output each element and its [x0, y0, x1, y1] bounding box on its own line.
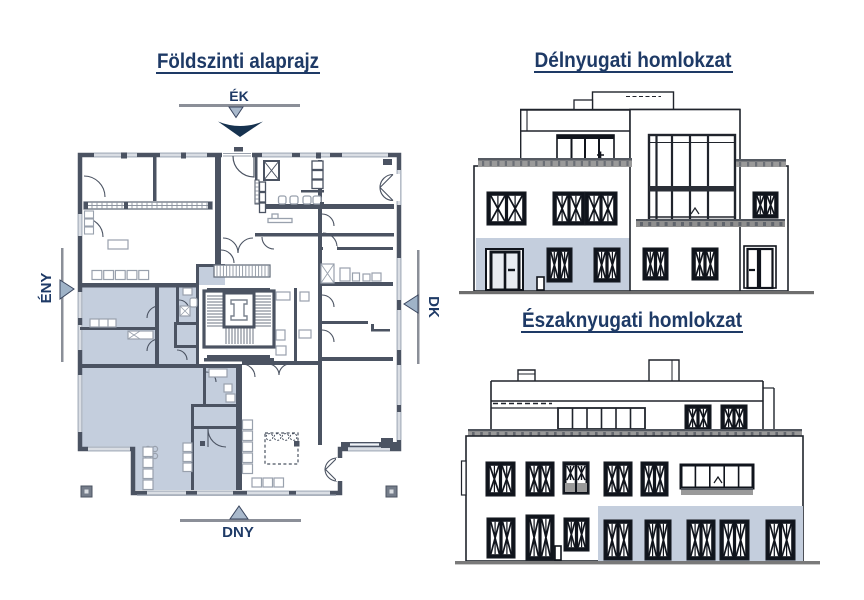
svg-text:Földszinti alaprajz: Földszinti alaprajz [157, 50, 319, 73]
svg-text:ÉNY: ÉNY [38, 273, 55, 304]
svg-text:DNY: DNY [222, 524, 254, 541]
svg-text:Délnyugati homlokzat: Délnyugati homlokzat [535, 49, 732, 72]
svg-text:Északnyugati homlokzat: Északnyugati homlokzat [522, 309, 742, 332]
svg-text:DK: DK [425, 296, 442, 318]
svg-text:ÉK: ÉK [229, 88, 248, 104]
